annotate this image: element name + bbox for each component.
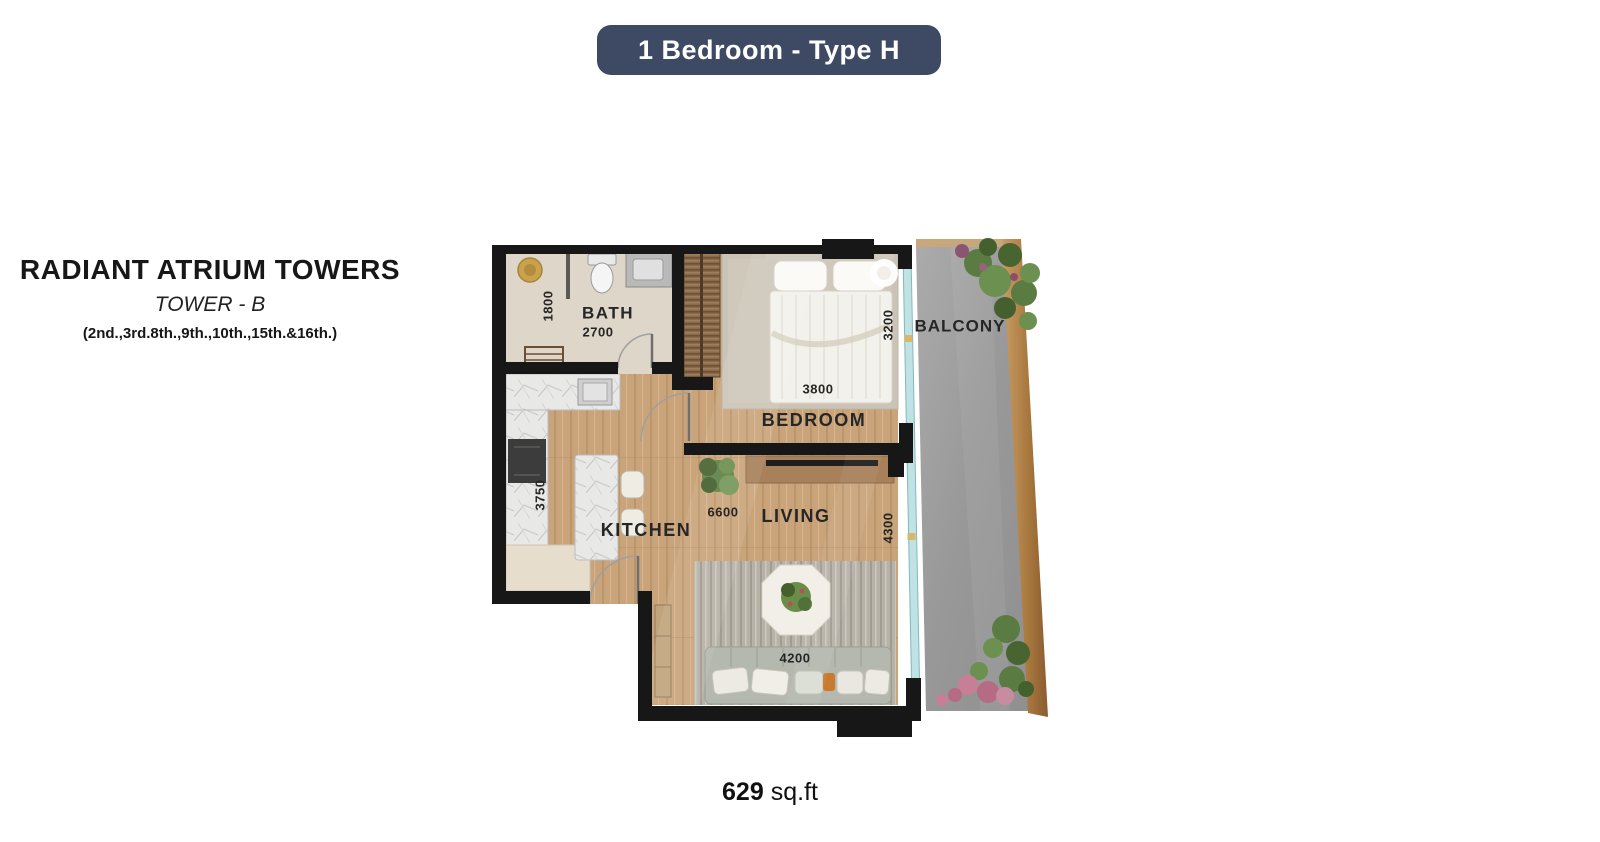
project-floors: (2nd.,3rd.8th.,9th.,10th.,15th.&16th.) [10, 325, 410, 342]
area-unit: sq.ft [771, 778, 818, 806]
bath-vanity-icon [626, 253, 672, 287]
bath-width-dim: 2700 [583, 326, 614, 339]
kitchen-depth-dim: 3750 [534, 480, 547, 511]
unit-type-badge: 1 Bedroom - Type H [597, 25, 941, 75]
kitchen-label: KITCHEN [601, 521, 692, 539]
kitchen-counter-left [506, 410, 548, 545]
kitchen-counter-top [506, 374, 620, 410]
project-info: RADIANT ATRIUM TOWERS TOWER - B (2nd.,3r… [10, 254, 410, 342]
bath-label: BATH [582, 305, 634, 322]
balcony-label: BALCONY [914, 318, 1005, 335]
bath-mirror-icon [518, 258, 542, 282]
unit-type-badge-label: 1 Bedroom - Type H [638, 35, 900, 66]
bedroom-depth-dim: 3200 [882, 310, 895, 341]
area-value: 629 [722, 778, 764, 806]
bedside-lamp-icon [870, 259, 898, 287]
floor-plan-drawing [490, 233, 1050, 739]
wardrobe [684, 253, 720, 377]
bedroom-label: BEDROOM [762, 411, 867, 429]
project-title: RADIANT ATRIUM TOWERS [10, 254, 410, 286]
balcony [916, 239, 1048, 717]
bath-depth-dim: 1800 [542, 291, 555, 322]
sofa-width-dim: 4200 [780, 652, 811, 665]
bedroom-width-dim: 3800 [803, 383, 834, 396]
floor-plan: 1800 BATH 2700 3800 BEDROOM 3200 BALCONY… [490, 233, 1050, 739]
living-label: LIVING [761, 507, 830, 525]
living-depth-dim: 4300 [882, 513, 895, 544]
project-tower: TOWER - B [10, 293, 410, 317]
living-width-dim: 6600 [708, 506, 739, 519]
page: 1 Bedroom - Type H RADIANT ATRIUM TOWERS… [0, 0, 1600, 842]
area-text: 629sq.ft [490, 778, 1050, 807]
